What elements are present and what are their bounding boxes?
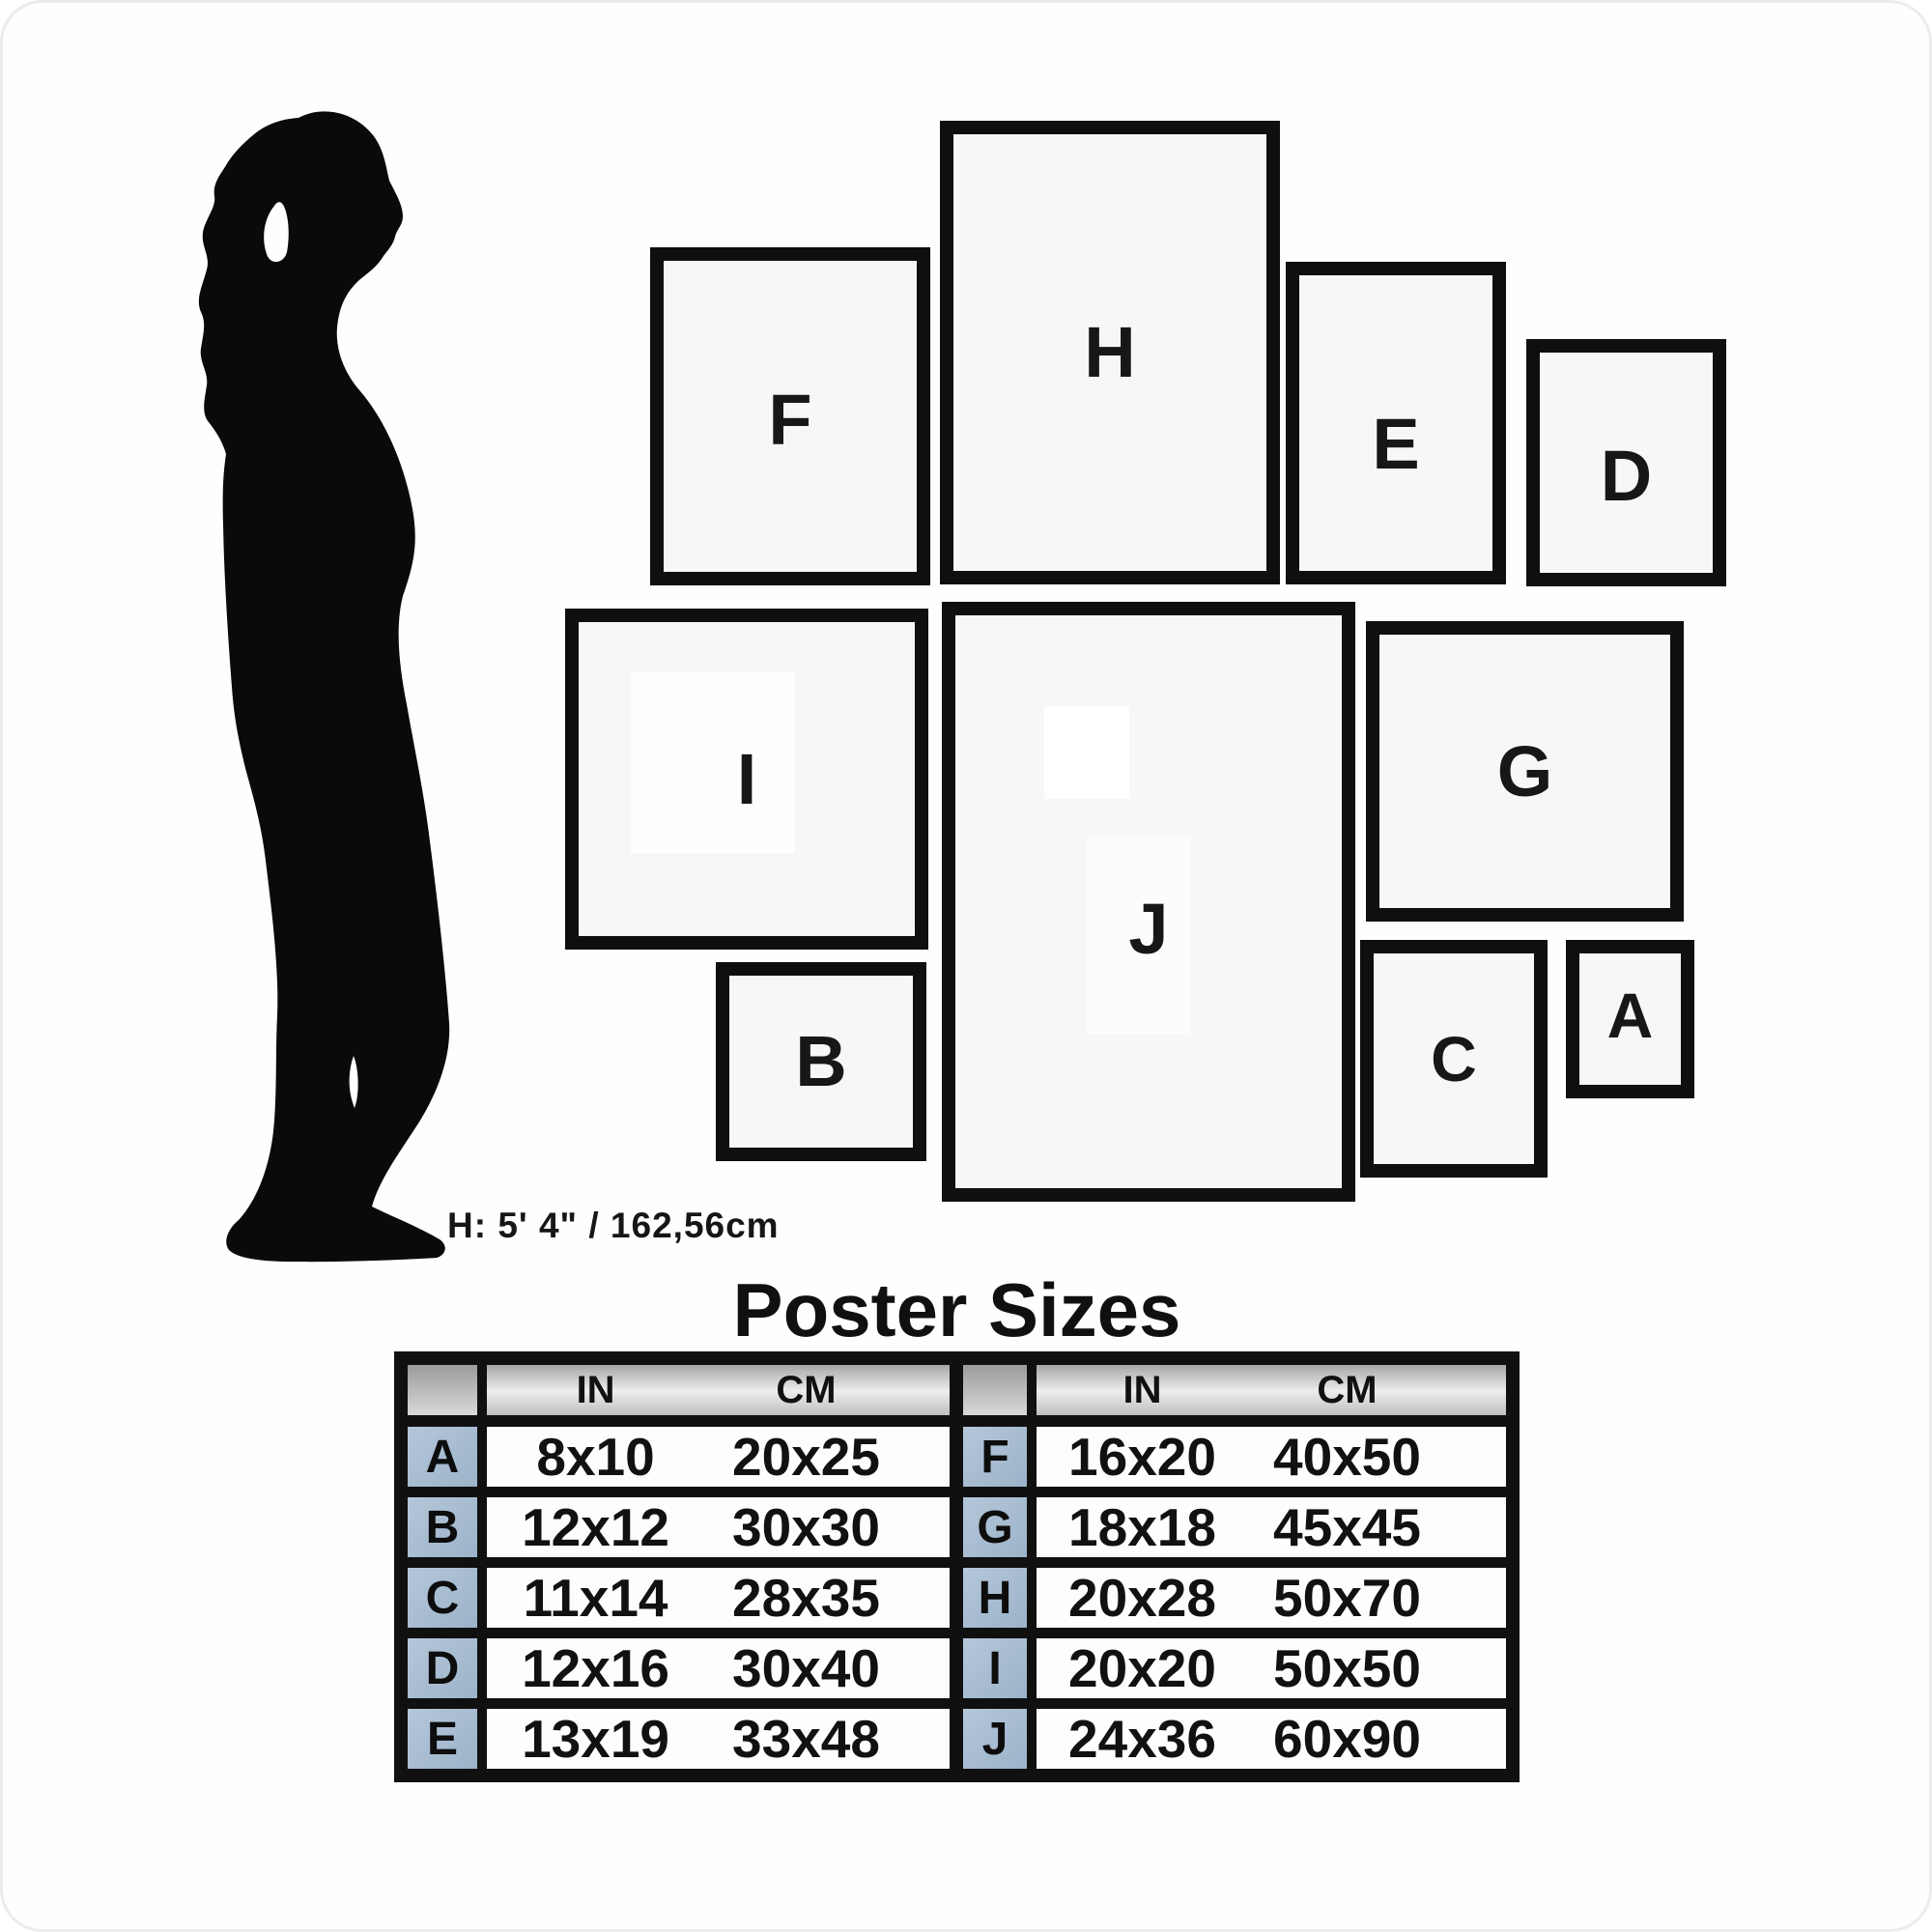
letter-cell-H: H (963, 1568, 1037, 1628)
table-header-row: IN CM IN CM (408, 1365, 1506, 1427)
header-cm-right: CM (1248, 1369, 1446, 1412)
values-J: 24x36 60x90 (1037, 1709, 1487, 1769)
table-row-B-G: B 12x12 30x30 G 18x18 45x45 (408, 1497, 1506, 1557)
frame-D-label: D (1601, 440, 1652, 512)
frame-E-label: E (1372, 409, 1419, 480)
frame-C-label: C (1431, 1027, 1477, 1091)
table-header-left: IN CM (487, 1365, 950, 1415)
frame-A: A (1566, 940, 1694, 1098)
frame-I: I (565, 609, 928, 950)
value-D-cm: 30x40 (704, 1637, 908, 1699)
table-middle-divider (950, 1568, 963, 1628)
frame-F-label: F (768, 384, 811, 456)
letter-cell-F: F (963, 1427, 1037, 1487)
values-C: 11x14 28x35 (487, 1568, 950, 1628)
value-G-in: 18x18 (1037, 1496, 1248, 1558)
table-header-right: IN CM (1037, 1365, 1487, 1415)
value-A-in: 8x10 (487, 1426, 704, 1488)
frame-J: J (942, 602, 1355, 1202)
table-corner-cell (408, 1365, 487, 1415)
header-in-right: IN (1037, 1369, 1248, 1412)
value-G-cm: 45x45 (1248, 1496, 1446, 1558)
value-B-in: 12x12 (487, 1496, 704, 1558)
value-B-cm: 30x30 (704, 1496, 908, 1558)
frame-F: F (650, 247, 930, 585)
values-F: 16x20 40x50 (1037, 1427, 1487, 1487)
height-reference-label: H: 5' 4" / 162,56cm (447, 1206, 780, 1246)
frame-H: H (940, 121, 1280, 584)
frame-I-label: I (737, 744, 757, 815)
values-E: 13x19 33x48 (487, 1709, 950, 1769)
letter-cell-B: B (408, 1497, 487, 1557)
frame-C: C (1360, 940, 1548, 1178)
table-row-E-J: E 13x19 33x48 J 24x36 60x90 (408, 1709, 1506, 1769)
value-F-in: 16x20 (1037, 1426, 1248, 1488)
frame-I-ghost (631, 671, 795, 853)
values-D: 12x16 30x40 (487, 1638, 950, 1698)
frame-A-label: A (1607, 983, 1654, 1047)
values-I: 20x20 50x50 (1037, 1638, 1487, 1698)
frame-E: E (1286, 262, 1506, 584)
values-G: 18x18 45x45 (1037, 1497, 1487, 1557)
value-J-in: 24x36 (1037, 1708, 1248, 1770)
poster-sizes-table: IN CM IN CM A 8x10 20x25 F 16x20 40x50 (394, 1351, 1520, 1782)
frame-J-ghost (1044, 706, 1129, 799)
table-row-C-H: C 11x14 28x35 H 20x28 50x70 (408, 1568, 1506, 1628)
header-in-left: IN (487, 1369, 704, 1412)
value-A-cm: 20x25 (704, 1426, 908, 1488)
table-middle-divider (950, 1709, 963, 1769)
frame-G: G (1366, 621, 1684, 922)
value-E-cm: 33x48 (704, 1708, 908, 1770)
values-H: 20x28 50x70 (1037, 1568, 1487, 1628)
value-I-cm: 50x50 (1248, 1637, 1446, 1699)
value-H-cm: 50x70 (1248, 1567, 1446, 1629)
letter-cell-D: D (408, 1638, 487, 1698)
value-J-cm: 60x90 (1248, 1708, 1446, 1770)
letter-cell-G: G (963, 1497, 1037, 1557)
frame-H-label: H (1084, 317, 1135, 388)
poster-size-chart: H: 5' 4" / 162,56cm F H E D I J G B C A … (0, 0, 1932, 1932)
letter-cell-C: C (408, 1568, 487, 1628)
value-D-in: 12x16 (487, 1637, 704, 1699)
values-B: 12x12 30x30 (487, 1497, 950, 1557)
table-row-A-F: A 8x10 20x25 F 16x20 40x50 (408, 1427, 1506, 1487)
frame-J-label: J (1128, 894, 1168, 965)
table-middle-divider (950, 1365, 963, 1415)
frame-G-label: G (1497, 736, 1553, 808)
value-C-cm: 28x35 (704, 1567, 908, 1629)
table-middle-divider (950, 1497, 963, 1557)
value-F-cm: 40x50 (1248, 1426, 1446, 1488)
value-I-in: 20x20 (1037, 1637, 1248, 1699)
table-middle-divider (950, 1427, 963, 1487)
value-H-in: 20x28 (1037, 1567, 1248, 1629)
letter-cell-A: A (408, 1427, 487, 1487)
table-title: Poster Sizes (394, 1266, 1520, 1354)
letter-cell-J: J (963, 1709, 1037, 1769)
frame-B: B (716, 962, 926, 1161)
table-middle-divider (950, 1638, 963, 1698)
table-row-D-I: D 12x16 30x40 I 20x20 50x50 (408, 1638, 1506, 1698)
table-corner-cell (963, 1365, 1037, 1415)
letter-cell-I: I (963, 1638, 1037, 1698)
values-A: 8x10 20x25 (487, 1427, 950, 1487)
value-E-in: 13x19 (487, 1708, 704, 1770)
value-C-in: 11x14 (487, 1567, 704, 1629)
frame-D: D (1526, 339, 1726, 586)
header-cm-left: CM (704, 1369, 908, 1412)
letter-cell-E: E (408, 1709, 487, 1769)
frame-B-label: B (795, 1026, 846, 1097)
